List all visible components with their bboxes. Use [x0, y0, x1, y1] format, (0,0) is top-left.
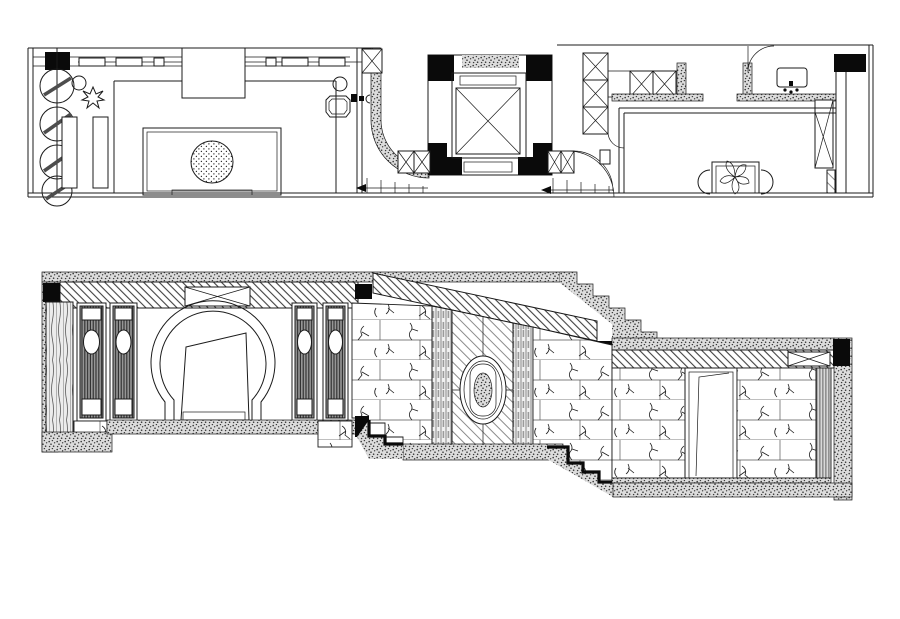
wall-pier: [677, 63, 686, 97]
beam-block: [355, 284, 372, 299]
planter-bench: [62, 117, 77, 188]
panel-medallion: [329, 330, 343, 354]
carved-panel-1: [77, 303, 106, 421]
beam-block: [833, 339, 850, 366]
floor-band-central: [403, 444, 563, 460]
wardrobe: [815, 100, 833, 168]
window-slot: [319, 58, 345, 66]
partition-wall: [612, 94, 703, 101]
window-slot: [154, 58, 164, 66]
window-slot: [266, 58, 276, 66]
ceiling-x-box: [788, 352, 830, 366]
marble-wall-3: [612, 368, 685, 478]
shaft-corner-column: [526, 55, 552, 81]
landscape-rock: [181, 333, 249, 420]
wood-post: [432, 306, 452, 445]
panel-medallion: [298, 330, 312, 354]
skirting-band: [612, 478, 831, 483]
marble-base-block: [318, 421, 352, 447]
door-opening: [685, 368, 737, 478]
round-table: [191, 141, 233, 183]
beam-block: [43, 283, 60, 302]
panel-medallion: [84, 330, 100, 354]
cad-drawing-canvas: [0, 0, 900, 619]
carved-panel-4: [323, 303, 348, 421]
right-top-border: [612, 338, 834, 350]
shaft-corner-column: [428, 55, 454, 81]
elevator-door-track: [462, 55, 519, 68]
marble-wall-4: [737, 368, 816, 478]
cad-drawing-page: [0, 0, 900, 619]
planter-bench: [93, 117, 108, 188]
top-border: [42, 272, 560, 282]
entry-vestibule: [182, 48, 245, 98]
window-slot: [116, 58, 142, 66]
wall-x-brace: [362, 49, 382, 73]
wall-niche: [600, 150, 610, 164]
floor-band-left: [42, 432, 112, 452]
striped-edge-strip: [816, 368, 831, 478]
wall-hatch-strip: [827, 170, 835, 193]
window-slot: [79, 58, 105, 66]
wood-post: [513, 323, 533, 445]
carved-panel-2: [110, 303, 137, 421]
central-doorway: [432, 306, 533, 445]
window-slot: [282, 58, 308, 66]
wall-pier: [743, 63, 752, 97]
right-section: [612, 339, 852, 497]
column-block: [834, 54, 866, 72]
door-hinge-mark: [351, 94, 357, 102]
carved-panel-3: [292, 303, 317, 421]
ornate-medallion: [460, 356, 506, 424]
door-hinge-mark: [359, 96, 364, 101]
panel-medallion: [116, 330, 131, 354]
wood-pilaster: [46, 302, 73, 433]
floor-band-right: [613, 483, 852, 497]
